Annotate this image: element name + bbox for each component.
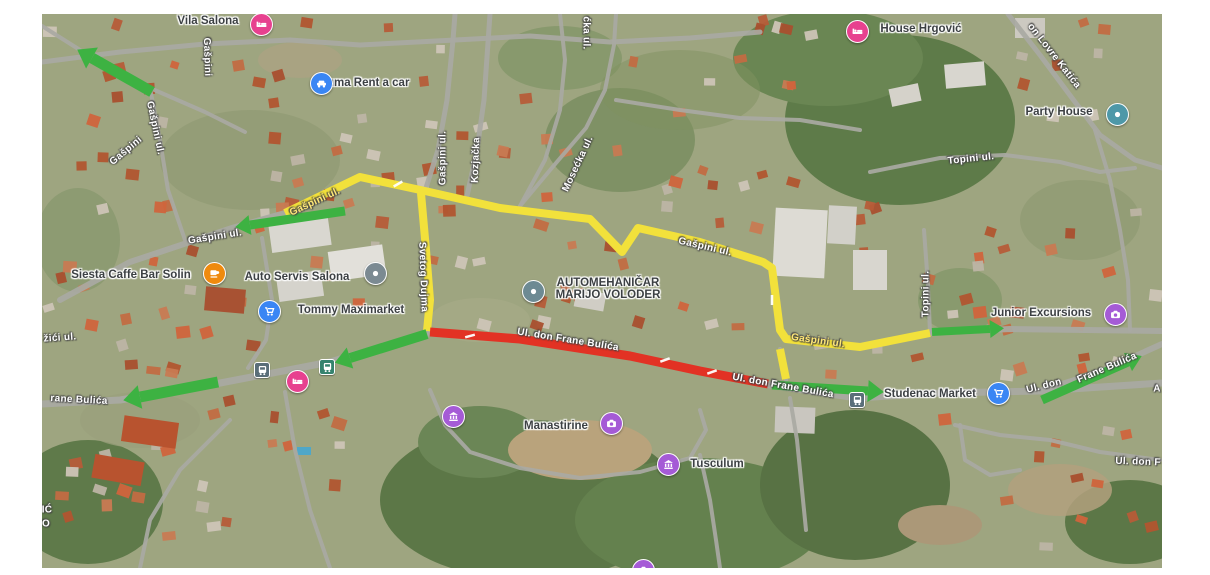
camera-icon bbox=[637, 564, 650, 569]
street-label-14: Topini ul. bbox=[947, 151, 995, 167]
camera-icon bbox=[1109, 308, 1122, 321]
poi-marker-iluma-rent-a-car[interactable] bbox=[310, 72, 333, 95]
street-label-20: Frane Bulića bbox=[1076, 351, 1139, 386]
street-label-12: Gašpini ul. bbox=[677, 236, 733, 259]
poi-label-siesta-caffe-bar-solin[interactable]: Siesta Caffe Bar Solin bbox=[71, 269, 191, 281]
poi-marker-studenac-market[interactable] bbox=[987, 382, 1010, 405]
poi-marker-auto-servis-salona[interactable] bbox=[364, 262, 387, 285]
poi-label-studenac-market[interactable]: Studenac Market bbox=[884, 388, 976, 400]
museum-icon bbox=[662, 458, 675, 471]
poi-label-text: Tusculum bbox=[690, 458, 743, 470]
poi-label-tommy-maximarket[interactable]: Tommy Maximarket bbox=[298, 304, 405, 316]
poi-label-text: Auto Servis Salona bbox=[245, 271, 350, 283]
transit-stop-bus-stop-center[interactable] bbox=[319, 359, 335, 375]
street-label-3: Gašpini ul. bbox=[288, 186, 342, 219]
poi-label-vila-salona[interactable]: Vila Salona bbox=[177, 15, 238, 27]
bus-icon bbox=[851, 394, 864, 407]
poi-label-iluma-rent-a-car[interactable]: Iluma Rent a car bbox=[321, 77, 410, 89]
street-label-8: Kozjačka bbox=[470, 137, 483, 183]
street-label-10: Mosećka ul. bbox=[560, 134, 595, 193]
poi-label-text: Studenac Market bbox=[884, 388, 976, 400]
poi-label-text: Junior Excursions bbox=[991, 307, 1091, 319]
poi-marker-party-house[interactable] bbox=[1106, 103, 1129, 126]
bus-icon bbox=[321, 361, 334, 374]
dot-icon bbox=[369, 267, 382, 280]
street-label-13: Gašpini ul. bbox=[790, 332, 845, 350]
street-label-15: Topini ul. bbox=[921, 271, 932, 318]
bus-icon bbox=[256, 364, 269, 377]
poi-label-house-hrgovic[interactable]: House Hrgović bbox=[880, 23, 961, 35]
poi-label-text-line2: MARIJO VOLODER bbox=[556, 289, 661, 301]
street-label-2: Gašpini ul. bbox=[187, 227, 242, 246]
street-label-18: Ul. don Frane Bulića bbox=[731, 372, 834, 401]
dot-icon bbox=[527, 285, 540, 298]
poi-label-manastirine[interactable]: Manastirine bbox=[524, 420, 588, 432]
poi-marker-camera-south[interactable] bbox=[632, 559, 655, 569]
poi-label-text: House Hrgović bbox=[880, 23, 961, 35]
poi-label-text: Manastirine bbox=[524, 420, 588, 432]
poi-marker-museum-west[interactable] bbox=[442, 405, 465, 428]
camera-icon bbox=[605, 417, 618, 430]
poi-label-text: Iluma Rent a car bbox=[321, 77, 410, 89]
cart-icon bbox=[263, 305, 276, 318]
car-icon bbox=[315, 77, 328, 90]
poi-label-text: Vila Salona bbox=[177, 15, 238, 27]
street-label-6: Gašpini bbox=[108, 134, 145, 167]
poi-marker-house-hrgovic[interactable] bbox=[846, 20, 869, 43]
transit-stop-bus-stop-west[interactable] bbox=[254, 362, 270, 378]
street-label-21: Ul. don F bbox=[1115, 456, 1161, 469]
street-label-11: Svetog Dujma bbox=[416, 242, 429, 313]
transit-stop-bus-stop-studenac[interactable] bbox=[849, 392, 865, 408]
poi-label-junior-excursions[interactable]: Junior Excursions bbox=[991, 307, 1091, 319]
poi-marker-automehanicar-marijo-voloder[interactable] bbox=[522, 280, 545, 303]
poi-label-text: Tommy Maximarket bbox=[298, 304, 405, 316]
poi-label-text: AUTOMEHANIČAR bbox=[556, 277, 661, 289]
street-label-0: žići ul. bbox=[43, 331, 77, 344]
bed-icon bbox=[851, 25, 864, 38]
cart-icon bbox=[992, 387, 1005, 400]
street-label-22: A bbox=[1153, 384, 1161, 395]
dot-icon bbox=[1111, 108, 1124, 121]
poi-marker-manastirine[interactable] bbox=[600, 412, 623, 435]
poi-label-auto-servis-salona[interactable]: Auto Servis Salona bbox=[245, 271, 350, 283]
poi-marker-vila-salona[interactable] bbox=[250, 14, 273, 36]
museum-icon bbox=[447, 410, 460, 423]
poi-label-text: Party House bbox=[1025, 106, 1092, 118]
street-label-9: ćka ul. bbox=[581, 16, 592, 49]
street-label-7: Gašpini ul. bbox=[438, 131, 449, 185]
street-label-23: IĆ bbox=[42, 505, 52, 516]
poi-label-tusculum[interactable]: Tusculum bbox=[690, 458, 743, 470]
poi-label-text: Siesta Caffe Bar Solin bbox=[71, 269, 191, 281]
map-screenshot: žići ul.rane BulićaGašpini ul.Gašpini ul… bbox=[0, 0, 1210, 575]
poi-marker-tommy-maximarket[interactable] bbox=[258, 300, 281, 323]
poi-marker-tusculum[interactable] bbox=[657, 453, 680, 476]
street-label-16: on Lovre Katića bbox=[1025, 21, 1083, 90]
bed-icon bbox=[255, 18, 268, 31]
poi-label-automehanicar-marijo-voloder[interactable]: AUTOMEHANIČARMARIJO VOLODER bbox=[556, 277, 661, 301]
street-label-5: Gašpini ul. bbox=[144, 100, 166, 156]
poi-marker-junior-excursions[interactable] bbox=[1104, 303, 1127, 326]
map-viewport[interactable]: žići ul.rane BulićaGašpini ul.Gašpini ul… bbox=[42, 14, 1162, 568]
street-label-17: Ul. don Frane Bulića bbox=[516, 327, 619, 354]
poi-label-party-house[interactable]: Party House bbox=[1025, 106, 1092, 118]
street-label-1: rane Bulića bbox=[50, 393, 108, 407]
bed-icon bbox=[291, 375, 304, 388]
street-label-4: Gašpini bbox=[201, 37, 213, 76]
street-label-24: O bbox=[42, 519, 50, 530]
poi-marker-lodging-bulica[interactable] bbox=[286, 370, 309, 393]
cup-icon bbox=[208, 267, 221, 280]
poi-marker-siesta-caffe-bar-solin[interactable] bbox=[203, 262, 226, 285]
street-label-19: Ul. don bbox=[1025, 376, 1063, 395]
map-label-overlay: žići ul.rane BulićaGašpini ul.Gašpini ul… bbox=[42, 14, 1162, 568]
